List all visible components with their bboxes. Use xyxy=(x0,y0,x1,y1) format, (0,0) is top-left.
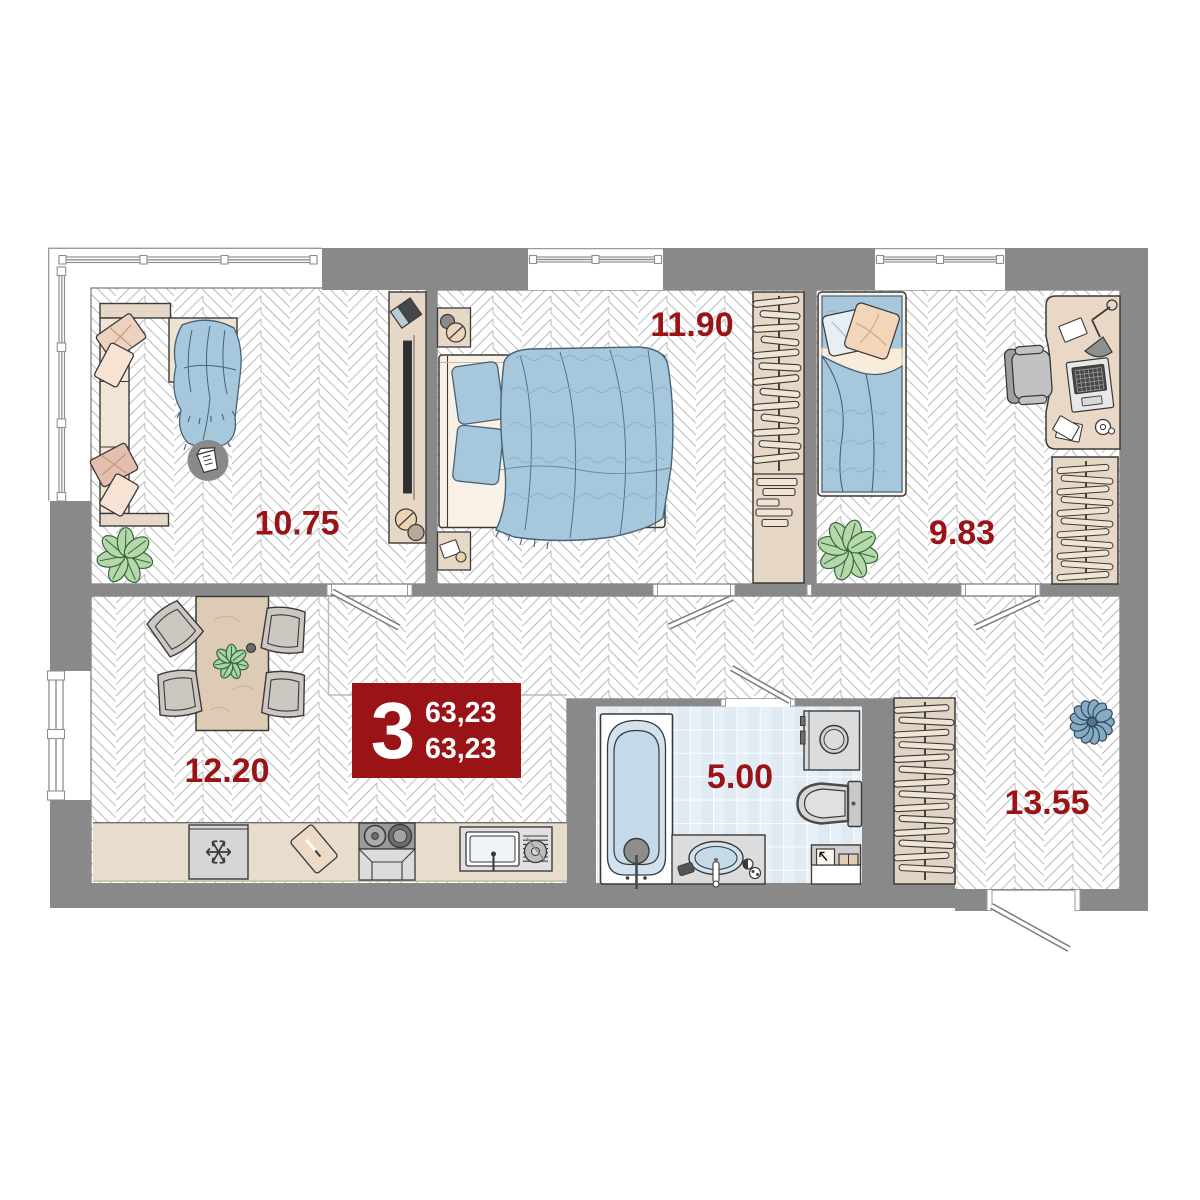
svg-text:10.75: 10.75 xyxy=(254,505,339,543)
svg-text:5.00: 5.00 xyxy=(707,758,773,796)
svg-text:63,23: 63,23 xyxy=(425,697,496,729)
svg-text:13.55: 13.55 xyxy=(1004,784,1089,822)
svg-text:3: 3 xyxy=(371,686,416,775)
svg-text:63,23: 63,23 xyxy=(425,733,496,765)
svg-text:11.90: 11.90 xyxy=(650,306,733,344)
svg-text:12.20: 12.20 xyxy=(184,752,269,790)
svg-text:9.83: 9.83 xyxy=(929,514,995,552)
